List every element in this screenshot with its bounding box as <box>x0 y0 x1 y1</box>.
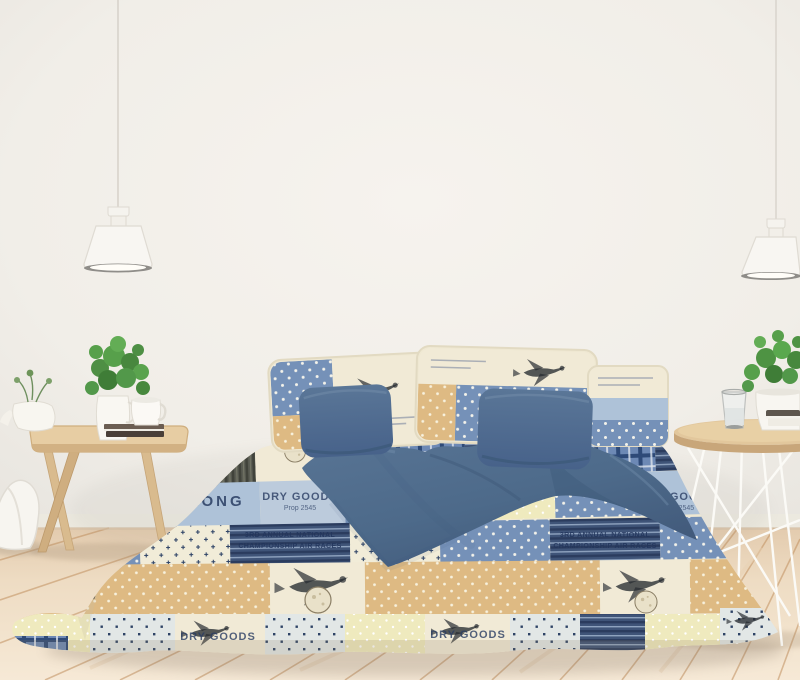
lamp-cap-right <box>767 219 785 228</box>
bedroom-scene: 3RD ANNUAL NATIONAL CHAMPIONSHIP AIR RAC… <box>0 0 800 680</box>
patch-text-annual: CHAMPIONSHIP AIR RACES <box>553 543 656 550</box>
lamp-cap-left <box>108 207 129 216</box>
book-stack-left <box>104 424 164 437</box>
patch-row <box>10 559 790 620</box>
scene-canvas: 3RD ANNUAL NATIONAL CHAMPIONSHIP AIR RAC… <box>0 0 800 680</box>
pillow-blue-right <box>477 388 594 470</box>
water-glass <box>722 390 746 430</box>
table-left-edge <box>32 444 186 452</box>
patch-text-annual: 3RD ANNUAL NATIONAL <box>245 532 336 539</box>
pillow-patchwork-small <box>588 366 668 446</box>
lamp-glow-right <box>747 273 795 279</box>
patch-text-annual: 3RD ANNUAL NATIONAL <box>560 532 651 539</box>
lamp-shade-left <box>84 226 152 269</box>
pillow-blue-left <box>298 384 394 459</box>
patch-text-dry-goods: DRY GOODS <box>430 629 506 641</box>
mug <box>131 397 165 425</box>
patch-text-prop: Prop 2545 <box>284 505 316 512</box>
patch-text-annual: CHAMPIONSHIP AIR RACES <box>238 543 341 550</box>
book-stack-right <box>766 410 800 426</box>
lamp-glow-left <box>90 264 146 270</box>
